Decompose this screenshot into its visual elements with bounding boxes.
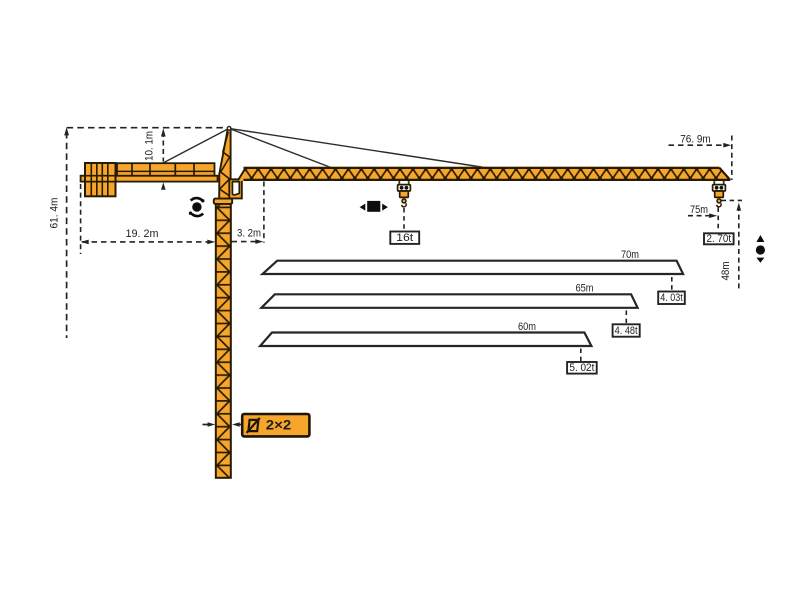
svg-text:2×2: 2×2: [266, 418, 292, 433]
svg-text:10. 1m: 10. 1m: [144, 131, 156, 161]
svg-text:4. 03t: 4. 03t: [660, 292, 683, 304]
svg-text:2. 70t: 2. 70t: [707, 233, 732, 245]
svg-text:65m: 65m: [576, 282, 594, 294]
svg-text:76. 9m: 76. 9m: [680, 133, 711, 145]
svg-text:3. 2m: 3. 2m: [237, 227, 261, 239]
svg-text:5. 02t: 5. 02t: [569, 362, 594, 374]
svg-text:75m: 75m: [690, 204, 708, 216]
svg-text:70m: 70m: [621, 249, 639, 261]
svg-text:60m: 60m: [518, 321, 536, 333]
svg-text:48m: 48m: [720, 262, 732, 281]
svg-text:16t: 16t: [396, 232, 413, 244]
svg-text:4. 48t: 4. 48t: [615, 325, 638, 337]
svg-text:19. 2m: 19. 2m: [126, 228, 159, 240]
svg-text:61. 4m: 61. 4m: [49, 198, 61, 229]
